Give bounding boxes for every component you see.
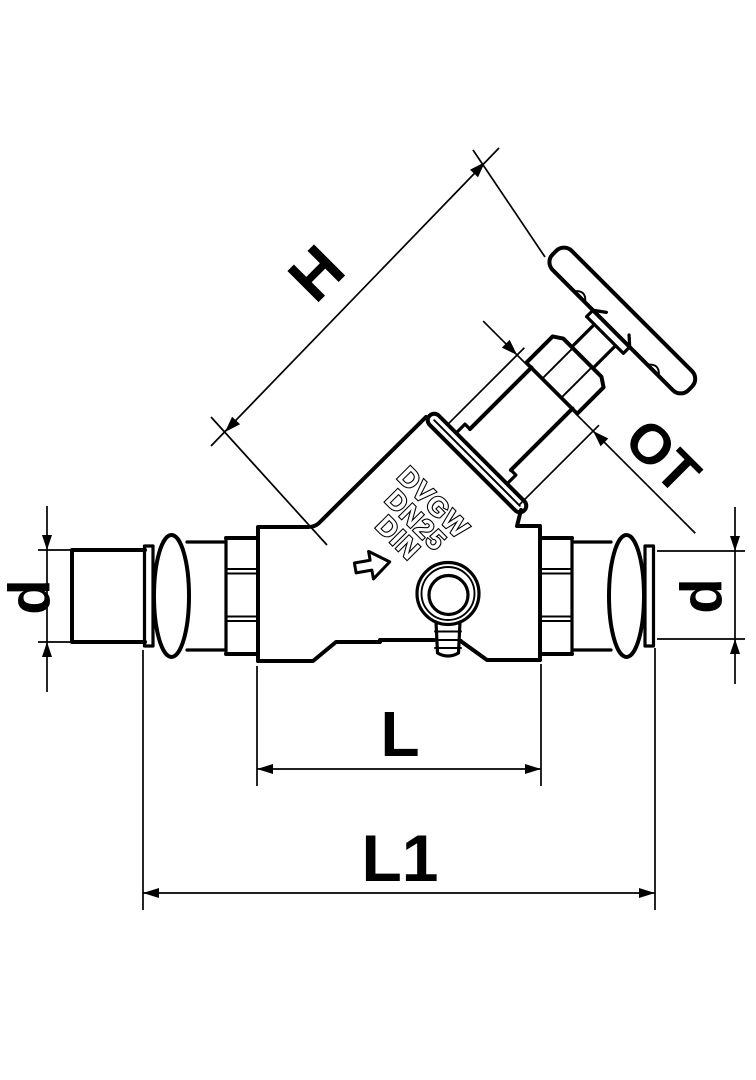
left-collar-hex-flats (227, 569, 258, 621)
bonnet-barrel (470, 368, 573, 471)
l1-arrowhead-right (639, 888, 655, 898)
d-left-arrowhead-bottom (42, 642, 52, 657)
d-left-arrowhead-top (42, 535, 52, 550)
valve-technical-drawing: DVGW DN25 DIN H OT d d L (0, 0, 756, 1080)
drain-spout (436, 622, 460, 656)
handwheel (545, 243, 700, 398)
d-left-dimension-label: d (0, 579, 62, 614)
d-right-arrowhead-top (730, 536, 740, 551)
right-press-bead (609, 535, 644, 657)
left-sleeve (187, 538, 226, 654)
bonnet-flange-centerline (434, 420, 520, 506)
left-mouth-ring (145, 546, 154, 646)
dimension-H: H (211, 148, 545, 545)
right-sleeve (572, 538, 611, 654)
left-press-fitting (72, 535, 258, 657)
l1-dimension-label: L1 (361, 821, 438, 895)
dimension-L: L (257, 664, 541, 786)
dimension-L1: L1 (143, 648, 655, 910)
drawing-sheet: DVGW DN25 DIN H OT d d L (0, 0, 756, 1080)
d-right-arrowhead-bottom (730, 639, 740, 654)
bonnet-collar-step (456, 424, 516, 484)
body-outline-bottom-right (462, 642, 540, 660)
h-dimension-label: H (274, 231, 358, 315)
dimension-d-left: d (0, 506, 72, 692)
bonnet-assembly (405, 242, 756, 612)
l1-arrowhead-left (143, 888, 159, 898)
l-arrowhead-left (257, 764, 273, 774)
h-dimension-line (211, 148, 499, 446)
drain-boss-inner (429, 576, 468, 615)
dimension-d-right: d (657, 507, 745, 684)
l-dimension-label: L (380, 698, 419, 770)
h-extension-line-top (473, 150, 545, 257)
packing-nut-hex-flats (542, 348, 591, 397)
right-mouth-ring (645, 546, 654, 646)
left-press-bead (154, 535, 189, 657)
handwheel-rim (545, 243, 700, 398)
body-outline-bottom-left (258, 640, 434, 661)
right-press-fitting (540, 535, 654, 657)
d-right-dimension-label: d (669, 578, 734, 613)
ot-dimension-label: OT (613, 406, 713, 506)
body-outline-right (517, 510, 540, 660)
spindle-stem (572, 324, 616, 368)
flow-direction-arrow-icon (353, 548, 392, 582)
left-collar (226, 538, 258, 654)
l-arrowhead-right (525, 764, 541, 774)
right-collar (540, 538, 572, 654)
right-collar-hex-flats (541, 569, 571, 621)
left-pipe-end (72, 550, 145, 642)
